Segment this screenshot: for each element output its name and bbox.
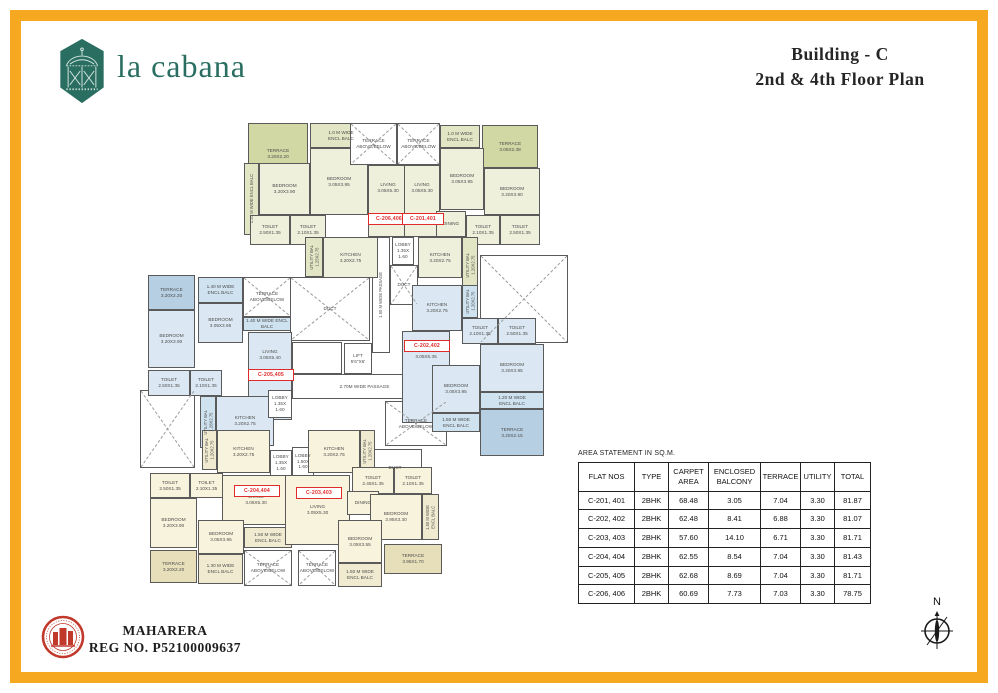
table-cell: C-203, 403 (579, 529, 635, 548)
table-cell: C-204, 404 (579, 547, 635, 566)
c204-encl-balc-2: 1.30 M WIDE ENCL BALC (198, 554, 243, 584)
c202-encl-balc-1: 1.20 M WIDE ENCL BALC (480, 392, 544, 409)
building-title: Building - C (720, 42, 960, 67)
unit-label-c201: C-201,401 (402, 213, 444, 225)
table-cell: 2BHK (635, 585, 669, 604)
brand-name: la cabana (117, 48, 246, 85)
area-table-body: C-201, 4012BHK68.483.057.043.3081.87C-20… (579, 491, 871, 604)
c204-living: LIVING 3.05X5.30 (222, 475, 290, 525)
unit-label-c205: C-205,405 (248, 369, 294, 381)
c205-toilet-2: TOILET 2.10X1.35 (190, 370, 222, 396)
c204-kitchen: KITCHEN 3.20X2.75 (217, 430, 270, 473)
terrace-above-below-mid: TERRACE ABOVE/BELOW (385, 401, 447, 446)
unit-label-c204: C-204,404 (234, 485, 280, 497)
lift: LIFT 5'6"X6' (344, 343, 372, 374)
table-row: C-201, 4012BHK68.483.057.043.3081.87 (579, 491, 871, 510)
table-cell: 2BHK (635, 529, 669, 548)
rera-line1: MAHARERA (84, 622, 246, 639)
table-cell: 62.68 (669, 566, 709, 585)
c203-bedroom-2: BEDROOM 3.05X3.55 (338, 520, 382, 563)
table-cell: 62.55 (669, 547, 709, 566)
rera-registration: MAHARERA REG NO. P52100009637 (84, 622, 246, 656)
c206-lobby: LOBBY 1.35X 1.60 (392, 237, 414, 265)
c204-toilet-2: TOILET 2.10X1.35 (190, 473, 223, 498)
c206-utility-bal: UTILITY BAL 1.25X2.75 (305, 237, 323, 277)
table-row: C-205, 4052BHK62.688.697.043.3081.71 (579, 566, 871, 585)
c201-terrace: TERRACE 3.05X2.38 (482, 125, 538, 168)
table-cell: 81.87 (835, 491, 871, 510)
table-row: C-202, 4022BHK62.488.416.883.3081.07 (579, 510, 871, 529)
duct-top: DUCT (390, 265, 418, 305)
table-cell: 3.05 (709, 491, 761, 510)
table-cell: 7.03 (761, 585, 801, 604)
column-header: FLAT NOS (579, 463, 635, 492)
c206-bedroom-2: BEDROOM 3.20X3.90 (259, 163, 310, 215)
c204-lobby-1: LOBBY 1.35X 1.60 (270, 450, 292, 476)
table-row: C-204, 4042BHK62.558.547.043.3081.43 (579, 547, 871, 566)
area-table: FLAT NOSTYPECARPET AREAENCLOSED BALCONYT… (578, 462, 871, 604)
table-cell: 3.30 (801, 585, 835, 604)
c201-living: LIVING 3.05X5.30 (404, 165, 440, 237)
floor-plan: 1.50 M WIDE PASSAGEDUCTDUCTLIFT 5'6"X6'2… (140, 113, 570, 605)
table-cell: 62.48 (669, 510, 709, 529)
area-table-head-row: FLAT NOSTYPECARPET AREAENCLOSED BALCONYT… (579, 463, 871, 492)
table-cell: 81.43 (835, 547, 871, 566)
c202-terrace: TERRACE 3.20X2.15 (480, 409, 544, 456)
c202-utility-bal: UTILITY BAL 1.20X2.75 (462, 285, 478, 318)
table-cell: 6.71 (761, 529, 801, 548)
table-cell: 3.30 (801, 510, 835, 529)
c201-bedroom-2: BEDROOM 3.20X3.90 (484, 168, 540, 215)
terrace-above-below-1: TERRACE ABOVE/BELOW (350, 123, 397, 165)
table-cell: 2BHK (635, 566, 669, 585)
brand-logo (56, 36, 108, 111)
table-cell: 14.10 (709, 529, 761, 548)
table-cell: 81.07 (835, 510, 871, 529)
floor-plan-title: 2nd & 4th Floor Plan (720, 67, 960, 92)
void-left (140, 390, 195, 468)
c204-terrace-above-below: TERRACE ABOVE/BELOW (244, 550, 292, 586)
column-header: TERRACE (761, 463, 801, 492)
table-cell: 68.48 (669, 491, 709, 510)
drawing-title: Building - C 2nd & 4th Floor Plan (720, 42, 960, 92)
c201-kitchen: KITCHEN 3.20X2.75 (418, 237, 462, 278)
table-cell: C-206, 406 (579, 585, 635, 604)
unit-label-c203: C-203,403 (296, 487, 342, 499)
c205-bedroom-1: BEDROOM 3.05X3.95 (198, 303, 243, 343)
column-header: UTILITY (801, 463, 835, 492)
table-cell: 78.75 (835, 585, 871, 604)
table-cell: 81.71 (835, 566, 871, 585)
cabana-icon (56, 36, 108, 106)
unit-label-c202: C-202,402 (404, 340, 450, 352)
c201-toilet-2: TOILET 2.50X1.35 (500, 215, 540, 245)
table-cell: 2BHK (635, 510, 669, 529)
column-header: ENCLOSED BALCONY (709, 463, 761, 492)
north-compass: N (916, 597, 958, 658)
table-row: C-206, 4062BHK60.697.737.033.3078.75 (579, 585, 871, 604)
terrace-above-below-2: TERRACE ABOVE/BELOW (397, 123, 440, 165)
table-cell: 3.30 (801, 529, 835, 548)
c202-bedroom-1: BEDROOM 3.20X3.95 (480, 344, 544, 392)
c206-living: LIVING 3.05X5.30 (368, 165, 408, 237)
table-cell: 7.73 (709, 585, 761, 604)
table-cell: 3.30 (801, 566, 835, 585)
c204-toilet-1: TOILET 2.50X1.35 (150, 473, 190, 498)
c204-bedroom-2: BEDROOM 3.05X3.95 (198, 520, 244, 554)
duct-main: DUCT (290, 277, 370, 341)
c202-kitchen: KITCHEN 3.20X2.75 (412, 285, 462, 331)
table-cell: 3.30 (801, 491, 835, 510)
c201-encl-balc-top: 1.0 M WIDE ENCL BALC (440, 125, 480, 148)
column-header: TOTAL (835, 463, 871, 492)
column-header: TYPE (635, 463, 669, 492)
c205-encl-balc-2: 1.40 M WIDE ENCL BALC (243, 317, 291, 331)
table-cell: 81.71 (835, 529, 871, 548)
table-cell: 8.41 (709, 510, 761, 529)
rera-line2: REG NO. P52100009637 (84, 639, 246, 656)
area-statement-title: AREA STATEMENT IN SQ.M. (578, 450, 870, 457)
c205-bedroom-2: BEDROOM 3.20X3.90 (148, 310, 195, 368)
c203-encl-balc-2: 1.50 M WIDE ENCL BALC (338, 563, 382, 587)
c204-utility-bal: UTILITY BAL 1.20X2.75 (202, 430, 217, 470)
area-statement: AREA STATEMENT IN SQ.M. FLAT NOSTYPECARP… (578, 450, 870, 604)
c203-toilet-1: TOILET 2.45X1.35 (352, 467, 394, 494)
c205-lobby: LOBBY 1.35X 1.60 (268, 390, 292, 418)
c203-toilet-2: TOILET 2.10X1.35 (394, 467, 432, 494)
c203-terrace: TERRACE 3.95X1.70 (384, 544, 442, 574)
table-row: C-203, 4032BHK57.6014.106.713.3081.71 (579, 529, 871, 548)
table-cell: 7.04 (761, 547, 801, 566)
table-cell: 60.69 (669, 585, 709, 604)
table-cell: 3.30 (801, 547, 835, 566)
table-cell: C-205, 405 (579, 566, 635, 585)
table-cell: 8.54 (709, 547, 761, 566)
c204-terrace: TERRACE 3.20X2.20 (150, 550, 197, 583)
table-cell: 7.04 (761, 566, 801, 585)
north-label: N (916, 597, 958, 608)
table-cell: 7.04 (761, 491, 801, 510)
c205-terrace-above-below: TERRACE ABOVE/BELOW (243, 277, 291, 317)
c206-kitchen: KITCHEN 3.20X2.75 (323, 237, 378, 278)
compass-icon (916, 609, 958, 653)
table-cell: C-202, 402 (579, 510, 635, 529)
c205-encl-balc-1: 1.40 M WIDE ENCL BALC (198, 277, 243, 303)
table-cell: 57.60 (669, 529, 709, 548)
table-cell: 2BHK (635, 491, 669, 510)
c203-encl-balc-1: 1.50 M WIDE ENCL BALC (422, 494, 439, 540)
c204-bedroom-1: BEDROOM 3.20X3.90 (150, 498, 197, 548)
c201-bedroom-1: BEDROOM 3.05X3.95 (440, 148, 484, 210)
column-header: CARPET AREA (669, 463, 709, 492)
c206-toilet-1: TOILET 2.50X1.35 (250, 215, 290, 245)
table-cell: 8.69 (709, 566, 761, 585)
table-cell: C-201, 401 (579, 491, 635, 510)
table-cell: 6.88 (761, 510, 801, 529)
c205-terrace: TERRACE 3.20X2.20 (148, 275, 195, 310)
c203-terrace-above-below: TERRACE ABOVE/BELOW (298, 550, 336, 586)
table-cell: 2BHK (635, 547, 669, 566)
maharera-seal-icon (40, 614, 86, 665)
staircase (292, 342, 342, 374)
